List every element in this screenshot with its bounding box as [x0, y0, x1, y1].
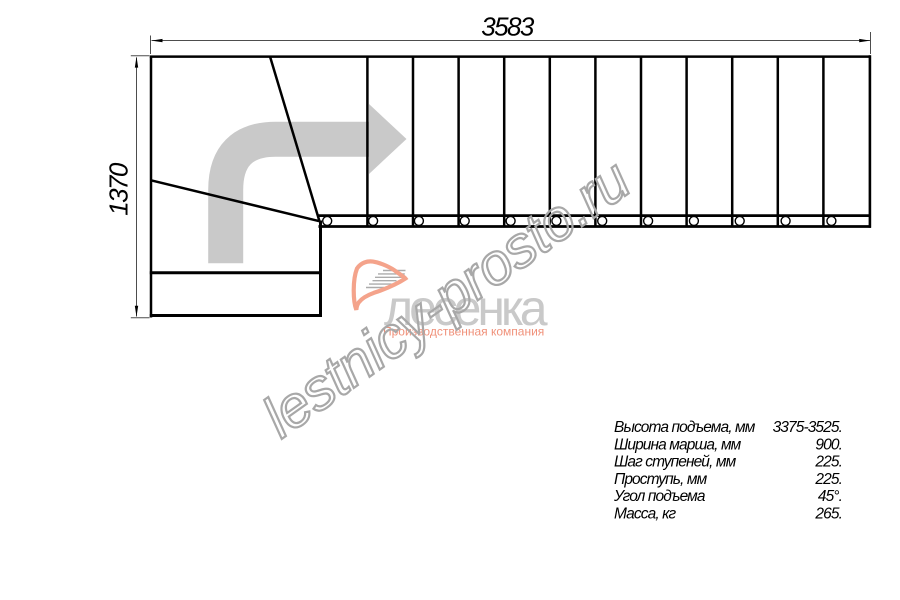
svg-text:225.: 225.	[814, 454, 842, 471]
svg-text:3583: 3583	[481, 12, 535, 42]
svg-text:Проступь, мм: Проступь, мм	[614, 471, 708, 488]
svg-text:265.: 265.	[814, 506, 842, 523]
svg-text:1370: 1370	[104, 162, 134, 216]
svg-text:Масса, кг: Масса, кг	[614, 506, 677, 523]
svg-text:900.: 900.	[815, 436, 842, 453]
svg-text:45°.: 45°.	[818, 488, 842, 505]
svg-text:Высота подъема, мм: Высота подъема, мм	[614, 419, 756, 436]
svg-text:Шаг ступеней, мм: Шаг ступеней, мм	[614, 454, 737, 471]
svg-text:Ширина марша, мм: Ширина марша, мм	[614, 436, 742, 453]
svg-text:Угол подъема: Угол подъема	[613, 488, 706, 505]
svg-text:225.: 225.	[814, 471, 842, 488]
svg-text:3375-3525.: 3375-3525.	[773, 419, 842, 436]
